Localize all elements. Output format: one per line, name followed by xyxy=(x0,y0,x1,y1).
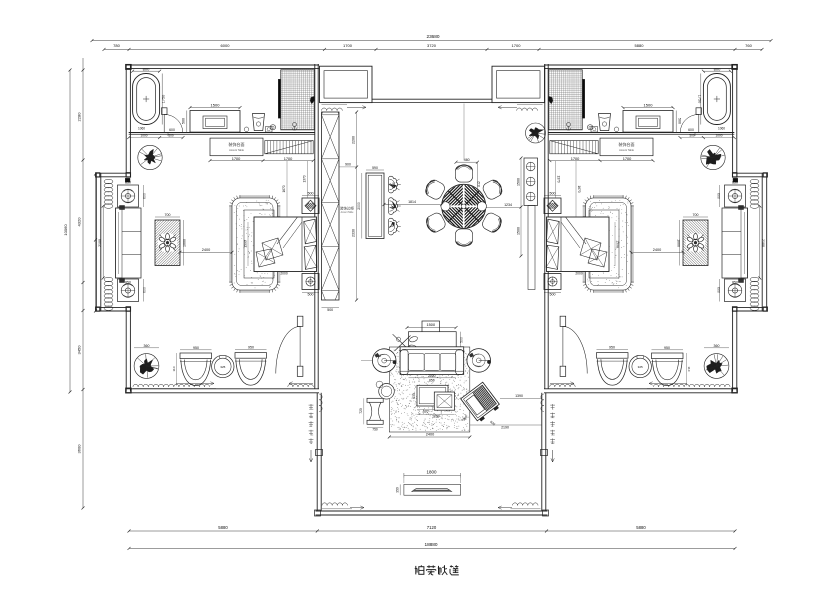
svg-text:1500: 1500 xyxy=(516,227,520,235)
svg-text:500: 500 xyxy=(550,191,556,195)
svg-text:1500: 1500 xyxy=(616,240,620,248)
svg-text:23680: 23680 xyxy=(426,34,439,39)
svg-text:600: 600 xyxy=(716,193,720,199)
svg-text:2400: 2400 xyxy=(426,432,434,436)
svg-text:780: 780 xyxy=(113,43,120,48)
svg-text:1390: 1390 xyxy=(515,394,523,398)
svg-text:2190: 2190 xyxy=(501,426,509,430)
svg-text:1700: 1700 xyxy=(232,156,241,161)
svg-text:2100: 2100 xyxy=(761,239,765,247)
svg-text:500: 500 xyxy=(689,134,695,138)
svg-text:2280: 2280 xyxy=(77,112,82,122)
svg-text:1670: 1670 xyxy=(282,185,286,192)
svg-text:3720: 3720 xyxy=(427,43,437,48)
svg-text:590: 590 xyxy=(372,166,378,170)
svg-text:1700: 1700 xyxy=(343,43,353,48)
svg-text:620: 620 xyxy=(423,410,429,414)
svg-text:600: 600 xyxy=(169,128,175,132)
svg-text:1500: 1500 xyxy=(243,240,247,248)
svg-text:500: 500 xyxy=(327,308,333,312)
svg-text:600: 600 xyxy=(143,287,147,293)
svg-text:1234: 1234 xyxy=(504,203,512,207)
svg-text:500: 500 xyxy=(459,337,463,343)
svg-text:18880: 18880 xyxy=(424,542,437,547)
svg-text:600: 600 xyxy=(143,193,147,199)
svg-text:600: 600 xyxy=(688,128,694,132)
svg-text:1500: 1500 xyxy=(426,322,435,327)
svg-text:750: 750 xyxy=(376,354,382,358)
svg-text:2000: 2000 xyxy=(428,374,436,378)
svg-text:350: 350 xyxy=(395,487,399,493)
svg-text:1814: 1814 xyxy=(408,200,416,204)
svg-text:800: 800 xyxy=(143,66,150,71)
svg-text:装饰台面: 装饰台面 xyxy=(229,141,245,147)
svg-text:700: 700 xyxy=(693,213,699,217)
svg-text:850: 850 xyxy=(125,181,131,185)
svg-text:325: 325 xyxy=(638,365,643,369)
svg-text:1670: 1670 xyxy=(577,185,581,192)
svg-text:1370: 1370 xyxy=(556,175,560,182)
svg-text:760: 760 xyxy=(745,43,752,48)
svg-text:1700: 1700 xyxy=(512,43,522,48)
svg-text:1000: 1000 xyxy=(677,239,681,247)
svg-text:1700: 1700 xyxy=(623,156,632,161)
svg-text:1370: 1370 xyxy=(303,175,307,182)
svg-text:5880: 5880 xyxy=(218,525,228,530)
svg-text:1700: 1700 xyxy=(284,156,293,161)
svg-text:1000: 1000 xyxy=(183,239,187,247)
svg-text:900: 900 xyxy=(345,163,351,167)
svg-text:500: 500 xyxy=(168,134,174,138)
svg-text:1000: 1000 xyxy=(140,134,147,138)
svg-text:10060: 10060 xyxy=(63,224,68,236)
svg-text:700: 700 xyxy=(165,213,171,217)
svg-text:950: 950 xyxy=(664,346,670,350)
svg-text:2330: 2330 xyxy=(352,229,356,237)
svg-text:850: 850 xyxy=(429,379,435,383)
svg-text:2400: 2400 xyxy=(202,248,210,252)
svg-text:1500: 1500 xyxy=(211,103,221,108)
svg-text:360: 360 xyxy=(144,344,150,348)
svg-text:1700: 1700 xyxy=(571,156,580,161)
svg-text:2000: 2000 xyxy=(357,202,361,210)
svg-text:1000: 1000 xyxy=(715,134,722,138)
svg-text:950: 950 xyxy=(193,346,199,350)
svg-text:Accent Table: Accent Table xyxy=(341,211,355,214)
svg-text:812: 812 xyxy=(477,181,481,187)
svg-text:110: 110 xyxy=(687,367,691,372)
svg-text:630: 630 xyxy=(412,393,416,399)
svg-text:1260: 1260 xyxy=(432,415,440,419)
svg-text:2000: 2000 xyxy=(575,272,583,276)
svg-text:500: 500 xyxy=(308,293,314,297)
svg-text:850: 850 xyxy=(732,280,738,284)
svg-text:1060: 1060 xyxy=(138,126,145,130)
svg-text:325: 325 xyxy=(220,365,225,369)
svg-text:3600: 3600 xyxy=(77,444,82,454)
svg-text:1060: 1060 xyxy=(718,126,725,130)
svg-text:800: 800 xyxy=(714,66,721,71)
svg-text:600: 600 xyxy=(716,287,720,293)
svg-text:460: 460 xyxy=(464,158,470,162)
svg-text:Accent Table: Accent Table xyxy=(619,148,634,152)
svg-text:500: 500 xyxy=(550,293,556,297)
svg-text:850: 850 xyxy=(732,181,738,185)
svg-text:500: 500 xyxy=(677,118,681,124)
svg-text:3450: 3450 xyxy=(77,345,82,355)
svg-text:1500: 1500 xyxy=(516,178,520,186)
svg-text:7120: 7120 xyxy=(427,525,437,530)
svg-text:360: 360 xyxy=(714,344,720,348)
svg-text:720: 720 xyxy=(359,408,363,414)
svg-text:1500: 1500 xyxy=(644,103,654,108)
svg-text:2200: 2200 xyxy=(352,136,356,144)
svg-text:5880: 5880 xyxy=(635,43,645,48)
svg-text:950: 950 xyxy=(248,345,254,349)
svg-text:装饰边柜: 装饰边柜 xyxy=(340,206,355,211)
svg-text:1750: 1750 xyxy=(698,95,702,103)
svg-text:2000: 2000 xyxy=(280,272,288,276)
svg-text:装饰台面: 装饰台面 xyxy=(619,141,635,147)
svg-text:5880: 5880 xyxy=(636,525,646,530)
svg-text:950: 950 xyxy=(609,345,615,349)
svg-text:6000: 6000 xyxy=(221,43,231,48)
svg-text:500: 500 xyxy=(182,118,186,124)
svg-text:2400: 2400 xyxy=(653,248,661,252)
svg-text:1800: 1800 xyxy=(427,469,437,474)
svg-text:2100: 2100 xyxy=(98,239,102,247)
svg-text:4320: 4320 xyxy=(77,217,82,227)
svg-text:750: 750 xyxy=(372,428,378,432)
svg-text:Accent Table: Accent Table xyxy=(229,148,244,152)
svg-text:1750: 1750 xyxy=(162,95,166,103)
svg-text:110: 110 xyxy=(172,366,176,371)
svg-text:850: 850 xyxy=(125,280,131,284)
svg-text:500: 500 xyxy=(308,191,314,195)
